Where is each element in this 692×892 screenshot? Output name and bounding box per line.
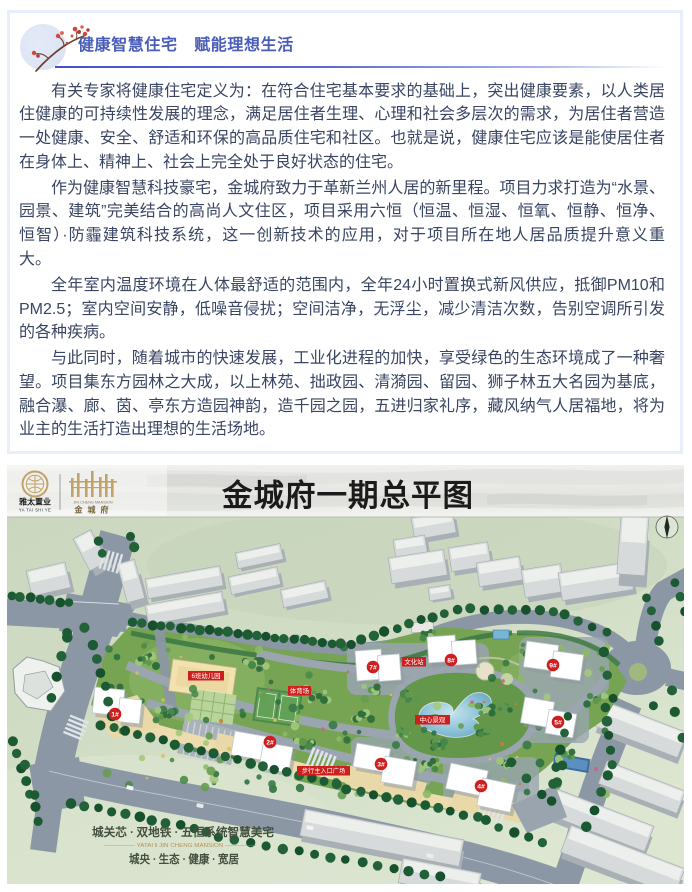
svg-text:金城府: 金城府 — [74, 505, 114, 515]
svg-text:体育场: 体育场 — [290, 686, 309, 695]
svg-text:1#: 1# — [111, 712, 119, 719]
svg-text:————— YATAI ‖ JIN CHENG MANS: ————— YATAI ‖ JIN CHENG MANSION ————— — [104, 843, 256, 849]
svg-text:雅太置业: 雅太置业 — [19, 497, 51, 507]
svg-text:7#: 7# — [369, 665, 377, 672]
svg-text:3#: 3# — [377, 762, 385, 769]
svg-text:中心景观: 中心景观 — [420, 715, 446, 724]
svg-text:城关芯 · 双地铁 · 五恒系统智慧美宅: 城关芯 · 双地铁 · 五恒系统智慧美宅 — [92, 825, 274, 839]
svg-text:2#: 2# — [266, 740, 274, 747]
svg-text:步行主入口广场: 步行主入口广场 — [302, 767, 345, 775]
svg-text:4#: 4# — [477, 784, 485, 791]
svg-text:城央 · 生态 · 健康 · 宽居: 城央 · 生态 · 健康 · 宽居 — [129, 852, 239, 866]
svg-text:6班幼儿园: 6班幼儿园 — [191, 671, 220, 680]
svg-text:金城府一期总平图: 金城府一期总平图 — [221, 478, 474, 513]
svg-text:JIN CHENG MANSION: JIN CHENG MANSION — [73, 501, 112, 505]
svg-text:5#: 5# — [554, 720, 562, 727]
svg-text:文化站: 文化站 — [404, 657, 424, 666]
svg-text:9#: 9# — [549, 663, 557, 670]
svg-text:8#: 8# — [447, 658, 455, 665]
svg-text:YA TAI SHI YE: YA TAI SHI YE — [19, 508, 51, 513]
